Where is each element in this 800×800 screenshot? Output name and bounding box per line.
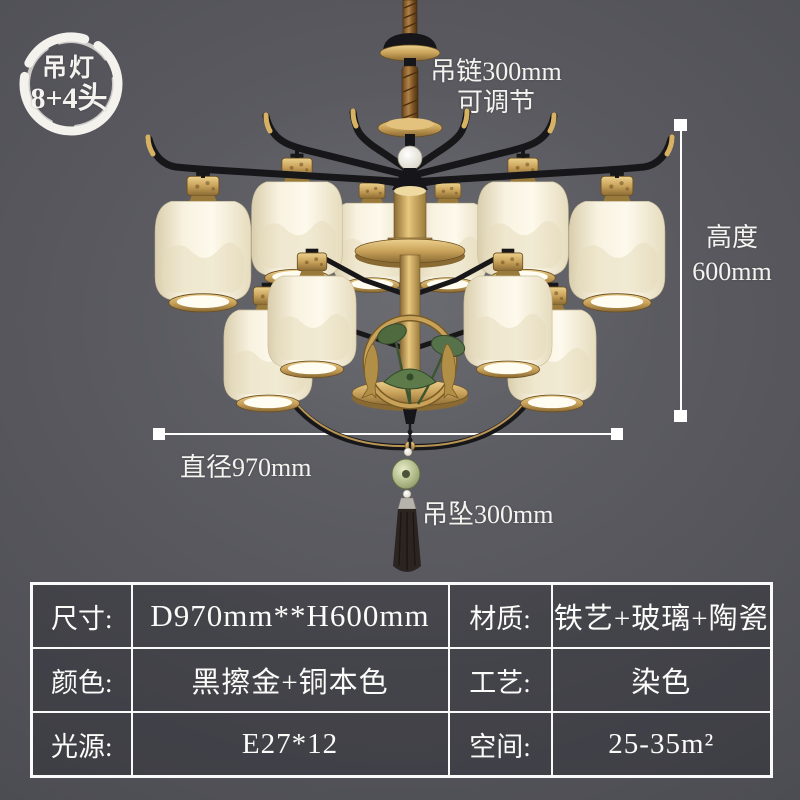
gold-fish-left: [362, 344, 378, 398]
lantern-lower-tier: [224, 249, 596, 412]
height-dimension-line: [674, 119, 687, 422]
lantern-upper-tier: [155, 154, 665, 312]
spec-row-size: 尺寸: D970mm**H600mm 材质: 铁艺+玻璃+陶瓷: [32, 584, 772, 649]
spec-row-color: 颜色: 黑擦金+铜本色 工艺: 染色: [32, 648, 772, 712]
diameter-annotation: 直径970mm: [180, 447, 311, 484]
drop-annotation: 吊坠300mm: [422, 494, 553, 531]
badge-line1: 吊灯: [14, 55, 124, 82]
lotus-ring-ornament: [362, 318, 467, 406]
chain-length-text: 吊链300mm: [420, 56, 572, 87]
spec-value-size: D970mm**H600mm: [132, 584, 449, 649]
spec-table: 尺寸: D970mm**H600mm 材质: 铁艺+玻璃+陶瓷 颜色: 黑擦金+…: [30, 582, 773, 778]
gold-fish-right: [442, 344, 458, 398]
spec-value-lightsource: E27*12: [132, 712, 449, 777]
chain-adjustable-text: 可调节: [420, 87, 572, 118]
height-label: 高度: [688, 221, 776, 255]
lantern-back-row: [333, 179, 486, 292]
diameter-dimension-line: [153, 428, 623, 440]
height-annotation: 高度 600mm: [688, 221, 776, 289]
spec-label-color: 颜色:: [32, 648, 132, 712]
product-badge: 吊灯 8+4头: [14, 55, 124, 115]
eave-arms: [148, 111, 672, 447]
spec-row-light: 光源: E27*12 空间: 25-35m²: [32, 712, 772, 777]
central-column: [352, 186, 468, 451]
chain-annotation: 吊链300mm 可调节: [420, 56, 572, 118]
product-poster: 吊灯 8+4头 吊链300mm 可调节 高度 600mm 直径970mm 吊坠3…: [0, 0, 800, 800]
spec-value-space: 25-35m²: [552, 712, 772, 777]
spec-value-color: 黑擦金+铜本色: [132, 648, 449, 712]
height-value: 600mm: [688, 255, 776, 289]
spec-label-size: 尺寸:: [32, 584, 132, 649]
pendant-tassel: [392, 424, 421, 572]
spec-label-lightsource: 光源:: [32, 712, 132, 777]
spec-label-space: 空间:: [449, 712, 552, 777]
spec-label-material: 材质:: [449, 584, 552, 649]
spec-label-craft: 工艺:: [449, 648, 552, 712]
spec-value-craft: 染色: [552, 648, 772, 712]
spec-value-material: 铁艺+玻璃+陶瓷: [552, 584, 772, 649]
badge-line2: 8+4头: [14, 82, 124, 115]
